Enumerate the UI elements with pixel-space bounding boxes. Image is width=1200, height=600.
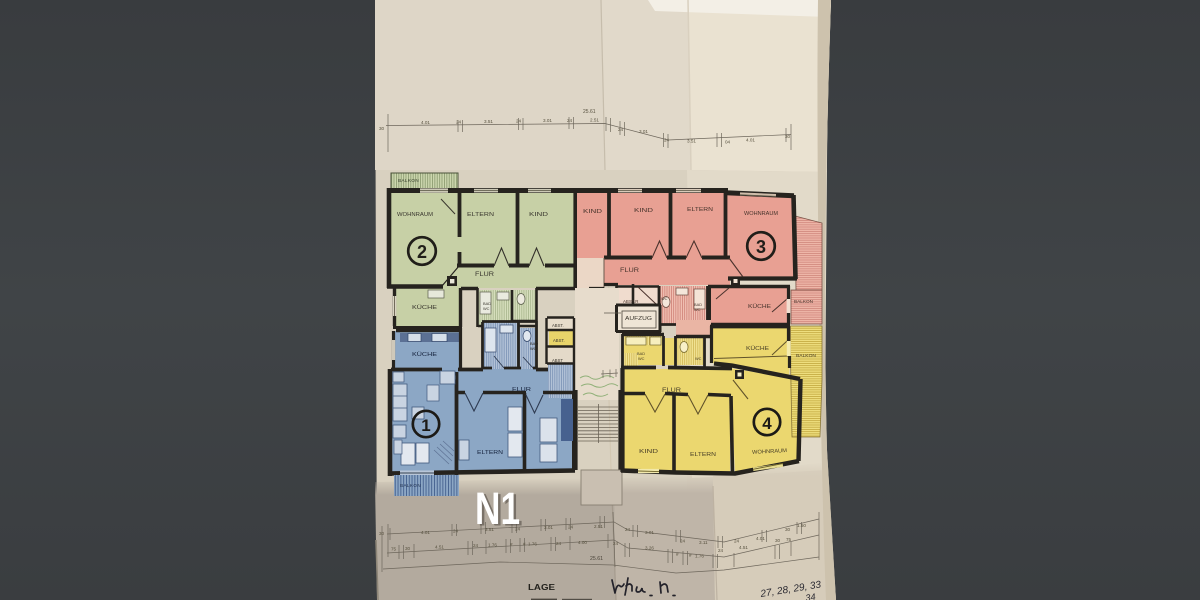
svg-text:WOHNRAUM: WOHNRAUM (744, 211, 779, 217)
svg-text:1.76: 1.76 (528, 542, 537, 547)
svg-text:ELTERN: ELTERN (687, 207, 713, 213)
svg-text:24: 24 (556, 541, 562, 546)
svg-text:ABST.: ABST. (553, 338, 565, 343)
svg-text:4.00: 4.00 (578, 540, 587, 545)
svg-text:75: 75 (391, 547, 397, 552)
svg-text:24: 24 (664, 138, 670, 143)
svg-text:LAGE: LAGE (528, 582, 555, 592)
svg-text:ABST.R: ABST.R (623, 299, 638, 304)
svg-text:WC: WC (661, 296, 668, 301)
svg-text:2.51: 2.51 (590, 118, 599, 123)
svg-text:24: 24 (625, 527, 631, 532)
svg-text:1.76: 1.76 (488, 543, 497, 548)
svg-text:34: 34 (805, 592, 816, 600)
svg-text:24: 24 (680, 539, 686, 544)
svg-text:3.51: 3.51 (484, 119, 493, 124)
svg-text:KÜCHE: KÜCHE (748, 303, 771, 310)
svg-text:3.01: 3.01 (543, 118, 552, 123)
svg-text:ABST: ABST (552, 358, 563, 363)
svg-text:04: 04 (725, 140, 731, 145)
svg-text:KIND: KIND (639, 449, 658, 455)
svg-text:AUFZUG: AUFZUG (625, 316, 652, 322)
svg-text:24: 24 (567, 118, 573, 123)
svg-text:30: 30 (379, 126, 385, 131)
svg-text:#: # (676, 552, 679, 557)
svg-text:24: 24 (718, 548, 724, 553)
svg-text:3.11: 3.11 (699, 540, 708, 545)
svg-text:4.01: 4.01 (756, 536, 765, 541)
svg-text:2.51: 2.51 (594, 524, 603, 529)
svg-text:2: 2 (417, 242, 427, 262)
svg-text:WC: WC (638, 356, 645, 361)
svg-text:1: 1 (421, 416, 430, 435)
svg-text:3.01: 3.01 (544, 525, 553, 530)
svg-text:24: 24 (453, 529, 459, 534)
svg-text:30: 30 (379, 531, 385, 536)
svg-text:BALKON: BALKON (400, 483, 421, 488)
svg-text:WC: WC (695, 356, 702, 361)
svg-text:WC: WC (483, 306, 490, 311)
svg-text:30: 30 (775, 538, 781, 543)
svg-text:KIND: KIND (583, 209, 602, 215)
svg-text:24: 24 (568, 525, 574, 530)
svg-text:FLUR: FLUR (620, 268, 640, 274)
svg-text:KÜCHE: KÜCHE (412, 304, 438, 311)
svg-text:30: 30 (785, 134, 791, 139)
svg-text:24: 24 (456, 120, 462, 125)
svg-text:75: 75 (786, 537, 792, 542)
svg-text:KÜCHE: KÜCHE (746, 345, 769, 352)
svg-text:3.26: 3.26 (645, 546, 654, 551)
svg-text:BALKON: BALKON (796, 353, 816, 358)
svg-text:BALKON: BALKON (794, 299, 813, 304)
svg-text:WC: WC (530, 346, 537, 351)
svg-text:4.01: 4.01 (746, 138, 755, 143)
svg-text:BALKON: BALKON (398, 178, 419, 183)
svg-text:FLUR: FLUR (662, 388, 682, 394)
svg-text:ELTERN: ELTERN (467, 212, 494, 218)
svg-text:3.51: 3.51 (687, 139, 696, 144)
svg-text:#: # (510, 542, 513, 547)
svg-text:#: # (689, 553, 692, 558)
svg-text:ELTERN: ELTERN (690, 452, 716, 458)
svg-text:4.51: 4.51 (739, 545, 748, 550)
svg-text:30: 30 (405, 546, 411, 551)
svg-text:ABST.: ABST. (552, 323, 564, 328)
svg-text:FLUR: FLUR (475, 272, 495, 278)
svg-text:ELTERN: ELTERN (477, 450, 503, 456)
svg-text:KÜCHE: KÜCHE (412, 351, 438, 358)
svg-text:KIND: KIND (529, 212, 548, 218)
svg-text:N1: N1 (475, 483, 520, 534)
svg-text:24: 24 (473, 543, 479, 548)
svg-text:4.51: 4.51 (435, 545, 444, 550)
svg-text:4.01: 4.01 (421, 530, 430, 535)
svg-text:25.61: 25.61 (590, 556, 603, 562)
svg-text:FLUR: FLUR (512, 387, 531, 393)
svg-text:WOHNRAUM: WOHNRAUM (397, 212, 434, 218)
svg-text:25.61: 25.61 (583, 109, 596, 115)
svg-text:24: 24 (516, 119, 522, 124)
svg-text:3.01: 3.01 (645, 530, 654, 535)
svg-text:3: 3 (756, 237, 766, 257)
svg-text:1.76: 1.76 (695, 554, 704, 559)
svg-text:3.01: 3.01 (639, 129, 648, 134)
svg-text:24: 24 (613, 541, 619, 546)
svg-text:WC: WC (694, 307, 701, 312)
svg-text:24: 24 (734, 539, 740, 544)
svg-text:1.50: 1.50 (797, 523, 806, 528)
svg-text:#: # (523, 542, 526, 547)
svg-text:4.01: 4.01 (421, 120, 430, 125)
svg-text:4: 4 (762, 414, 772, 433)
svg-text:30: 30 (785, 527, 791, 532)
svg-text:KIND: KIND (634, 208, 653, 214)
svg-text:24: 24 (618, 127, 624, 132)
